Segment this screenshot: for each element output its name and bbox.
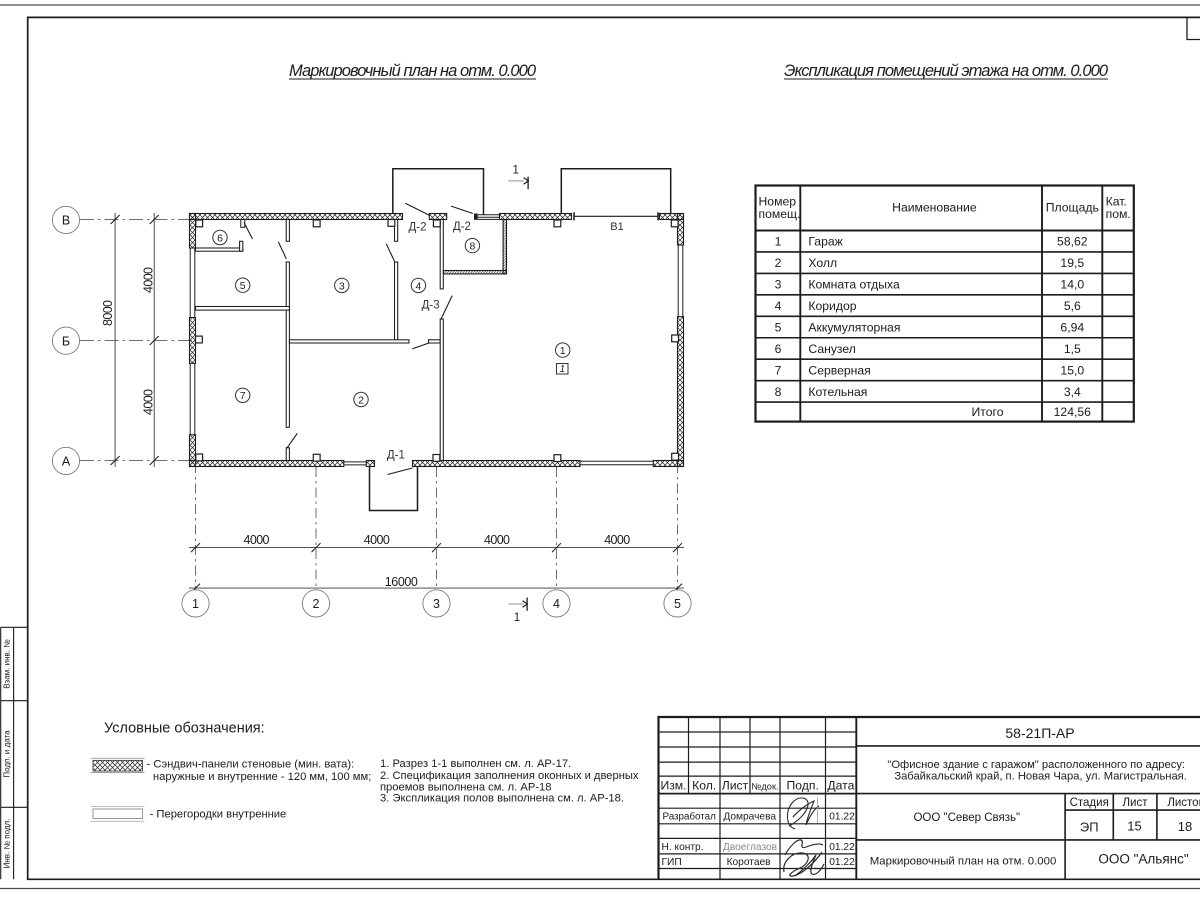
svg-text:5,6: 5,6 <box>1064 299 1081 313</box>
svg-text:Д-2: Д-2 <box>453 221 471 233</box>
svg-text:Серверная: Серверная <box>808 363 870 377</box>
svg-text:Подп.: Подп. <box>787 778 819 792</box>
svg-text:пом.: пом. <box>1106 207 1131 221</box>
svg-text:1. Разрез 1-1 выполнен см. л.: 1. Разрез 1-1 выполнен см. л. АР-17. <box>380 758 571 770</box>
svg-text:5: 5 <box>240 280 246 292</box>
svg-text:1,5: 1,5 <box>1064 342 1081 356</box>
svg-text:Наименование: Наименование <box>892 201 977 215</box>
svg-text:8: 8 <box>469 241 475 253</box>
svg-text:Экспликация помещений этажа на: Экспликация помещений этажа на отм. 0.00… <box>784 62 1109 80</box>
svg-text:14,0: 14,0 <box>1060 278 1084 292</box>
svg-text:5: 5 <box>775 320 782 334</box>
svg-text:6,94: 6,94 <box>1060 320 1084 334</box>
svg-text:8: 8 <box>775 385 782 399</box>
svg-text:4000: 4000 <box>141 267 155 293</box>
svg-text:наружные и внутренние - 120 мм: наружные и внутренние - 120 мм, 100 мм; <box>153 771 371 783</box>
svg-text:Лист: Лист <box>1123 797 1149 809</box>
svg-text:16000: 16000 <box>385 575 418 589</box>
svg-text:3. Экспликация полов выполнена: 3. Экспликация полов выполнена см. л. АР… <box>380 793 624 805</box>
svg-text:4: 4 <box>415 280 421 292</box>
svg-text:4000: 4000 <box>141 389 155 415</box>
svg-text:№док.: №док. <box>751 781 778 791</box>
svg-text:58,62: 58,62 <box>1057 235 1088 249</box>
svg-text:01.22: 01.22 <box>829 842 855 853</box>
svg-text:помещ.: помещ. <box>759 207 801 221</box>
svg-text:Стадия: Стадия <box>1070 797 1109 809</box>
svg-text:1: 1 <box>560 345 566 357</box>
svg-text:ООО "Север Связь": ООО "Север Связь" <box>913 812 1020 824</box>
svg-text:7: 7 <box>775 363 782 377</box>
svg-text:Санузел: Санузел <box>808 342 855 356</box>
svg-text:Д-1: Д-1 <box>387 450 405 462</box>
svg-text:Площадь: Площадь <box>1046 201 1099 215</box>
svg-text:В1: В1 <box>610 221 623 233</box>
svg-text:Д-3: Д-3 <box>422 299 440 311</box>
svg-text:Условные обозначения:: Условные обозначения: <box>104 720 265 736</box>
svg-text:Маркировочный план на отм. 0.0: Маркировочный план на отм. 0.000 <box>870 856 1057 868</box>
svg-text:4000: 4000 <box>484 533 510 547</box>
svg-text:3: 3 <box>775 278 782 292</box>
svg-text:4: 4 <box>775 299 782 313</box>
svg-text:Итого: Итого <box>972 405 1004 419</box>
svg-text:Лист: Лист <box>722 778 749 792</box>
svg-text:4000: 4000 <box>244 533 270 547</box>
svg-text:2: 2 <box>313 597 320 611</box>
svg-text:Разработал: Разработал <box>663 812 717 823</box>
svg-text:ООО "Альянс": ООО "Альянс" <box>1098 852 1188 867</box>
svg-text:6: 6 <box>775 342 782 356</box>
svg-text:"Офисное здание с гаражом" рас: "Офисное здание с гаражом" расположенног… <box>887 759 1185 771</box>
svg-text:7: 7 <box>240 390 246 402</box>
svg-text:1: 1 <box>514 612 520 624</box>
svg-text:Котельная: Котельная <box>808 385 867 399</box>
svg-text:ЭП: ЭП <box>1080 820 1099 835</box>
svg-text:Листов: Листов <box>1167 797 1200 809</box>
svg-text:Коридор: Коридор <box>808 299 856 313</box>
svg-text:5: 5 <box>674 597 681 611</box>
svg-text:Забайкальский край, п. Новая Ч: Забайкальский край, п. Новая Чара, ул. М… <box>894 770 1187 782</box>
svg-text:Б: Б <box>62 334 70 348</box>
svg-text:Гараж: Гараж <box>808 235 843 249</box>
svg-text:3: 3 <box>339 280 345 292</box>
svg-text:15: 15 <box>1127 819 1141 834</box>
svg-text:Изм.: Изм. <box>660 778 686 792</box>
svg-text:Холл: Холл <box>808 256 837 270</box>
svg-text:2: 2 <box>358 394 364 406</box>
svg-text:А: А <box>62 455 71 469</box>
svg-text:58-21П-АР: 58-21П-АР <box>1005 725 1074 741</box>
svg-text:124,56: 124,56 <box>1054 405 1091 419</box>
svg-text:01.22: 01.22 <box>829 812 855 823</box>
svg-text:- Сэндвич-панели стеновые (мин: - Сэндвич-панели стеновые (мин. вата): <box>147 758 355 770</box>
svg-text:6: 6 <box>217 232 223 244</box>
svg-text:1: 1 <box>192 597 199 611</box>
svg-text:Маркировочный план на отм. 0.0: Маркировочный план на отм. 0.000 <box>289 62 537 80</box>
svg-text:Инв. № подл.: Инв. № подл. <box>3 819 12 869</box>
svg-text:15,0: 15,0 <box>1060 363 1084 377</box>
svg-text:Дата: Дата <box>827 778 854 792</box>
svg-text:1: 1 <box>512 165 518 177</box>
svg-text:2: 2 <box>775 256 782 270</box>
svg-text:Двоеглазов: Двоеглазов <box>723 842 777 853</box>
svg-text:Домрачева: Домрачева <box>723 812 776 823</box>
svg-text:3,4: 3,4 <box>1064 385 1081 399</box>
svg-text:В: В <box>62 214 70 228</box>
svg-text:1: 1 <box>775 235 782 249</box>
svg-text:Комната отдыха: Комната отдыха <box>808 278 900 292</box>
svg-text:Н. контр.: Н. контр. <box>662 842 704 853</box>
svg-text:18: 18 <box>1178 819 1192 834</box>
svg-text:4: 4 <box>553 597 560 611</box>
svg-text:ГИП: ГИП <box>662 857 682 868</box>
svg-text:3: 3 <box>433 597 440 611</box>
svg-text:Подп. и дата: Подп. и дата <box>3 730 12 778</box>
svg-text:2. Спецификация заполнения око: 2. Спецификация заполнения оконных и две… <box>380 770 639 782</box>
svg-text:8000: 8000 <box>101 300 115 326</box>
svg-text:Коротаев: Коротаев <box>727 857 771 868</box>
svg-text:Д-2: Д-2 <box>408 222 426 234</box>
svg-text:01.22: 01.22 <box>829 857 855 868</box>
svg-text:Кол.: Кол. <box>692 778 716 792</box>
svg-text:- Перегородки внутренние: - Перегородки внутренние <box>150 809 287 821</box>
svg-text:19,5: 19,5 <box>1060 256 1084 270</box>
svg-text:4000: 4000 <box>364 533 390 547</box>
svg-text:Аккумуляторная: Аккумуляторная <box>808 320 900 334</box>
svg-text:Взам. инв. №: Взам. инв. № <box>3 639 12 689</box>
svg-text:1: 1 <box>560 364 566 375</box>
svg-text:4000: 4000 <box>604 533 630 547</box>
